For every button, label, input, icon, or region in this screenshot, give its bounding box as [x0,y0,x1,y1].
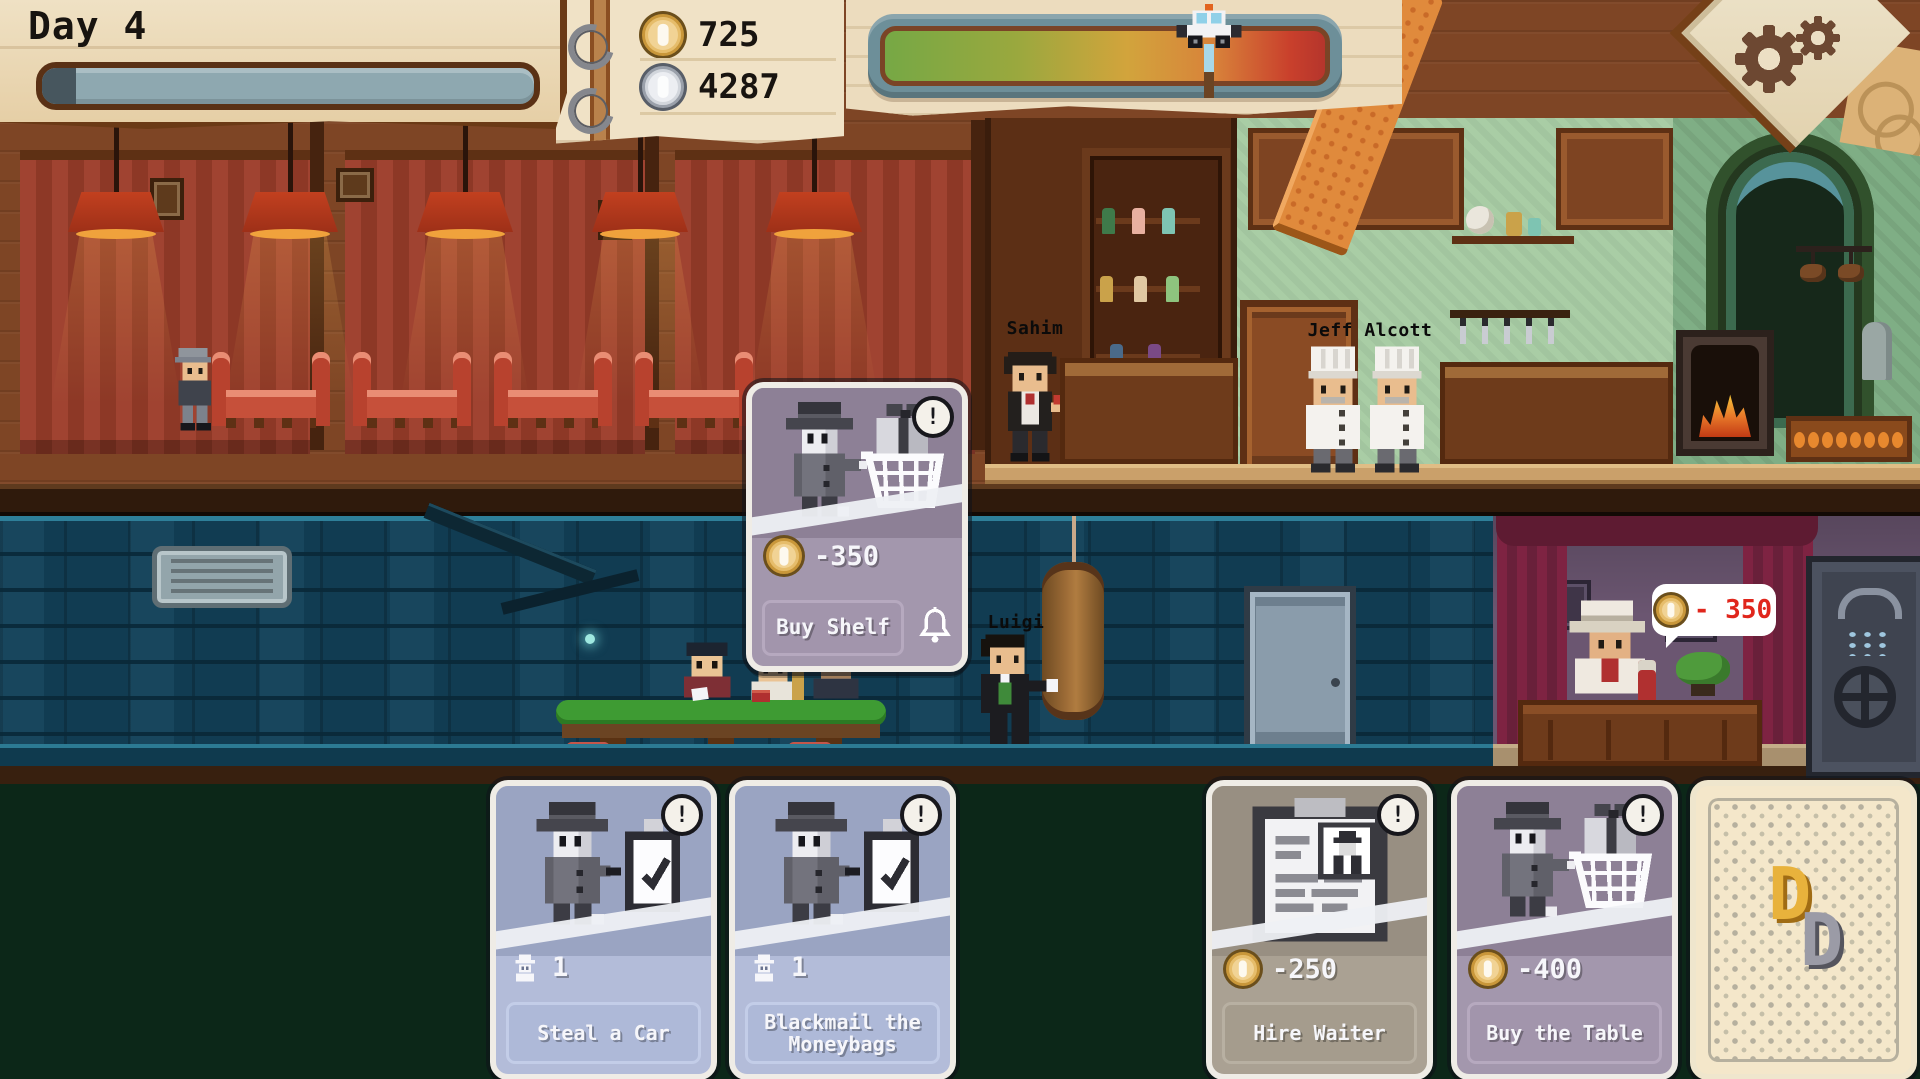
game-screen: Sahim Jeff [0,0,1920,1079]
npc-chef[interactable] [1358,338,1436,482]
person-icon [749,953,779,983]
gold-amount: 725 [698,15,759,55]
gear-icon [1794,14,1842,62]
statue [1862,322,1892,380]
knife-rack [1450,310,1570,318]
globe-lamp [1466,206,1494,234]
npc-bartender[interactable] [995,352,1065,466]
jar [1506,212,1522,236]
card-cost: -250 [1272,954,1337,985]
binder-ring [560,16,623,79]
gold-coin-icon [642,14,684,56]
ledger-line [640,58,836,61]
card-cost: -350 [814,541,879,572]
npc-customer[interactable] [168,348,218,434]
binder-ring [560,80,623,143]
curtain-valance [1496,516,1818,546]
card-cost: -400 [1517,954,1582,985]
poker-chips [752,690,770,702]
pan-rail [1796,246,1872,252]
currency-panel: 725 4287 [556,0,844,148]
card-title: Steal a Car [506,1002,701,1064]
picture-frame [336,168,374,202]
alert-badge: ! [1622,794,1664,836]
safe[interactable] [1806,556,1920,778]
kitchen-counter[interactable] [1440,362,1673,464]
air-vent [152,546,292,608]
card-title: Hire Waiter [1222,1002,1417,1064]
card-title: Buy Shelf [762,600,904,656]
day-panel: Day 4 [0,0,567,129]
desk-plant [1676,652,1730,686]
restaurant-floorboards [985,464,1920,484]
gold-coin-icon [1656,595,1686,625]
alert-badge: ! [912,396,954,438]
police-meter-marker [1175,4,1243,50]
card-face-down[interactable]: D D [1690,780,1917,1079]
kitchen-shelf [1452,236,1574,244]
gold-coin-icon [1226,952,1260,986]
kitchen-cabinet[interactable] [1556,128,1674,230]
card-back-monogram: D [1800,904,1843,976]
cost-speech-bubble: - 350 [1652,584,1776,636]
silver-coin-icon [642,66,684,108]
bubble-cost-value: - 350 [1694,595,1772,625]
card-title: Buy the Table [1467,1002,1662,1064]
fireplace[interactable] [1676,330,1774,456]
day-label: Day 4 [28,4,147,48]
npc-name-label: Luigi [988,612,1045,633]
card-art: ! [496,786,711,956]
card-buy-shelf[interactable]: ! -350 Buy Shelf [746,382,968,672]
alert-badge: ! [1377,794,1419,836]
police-heat-meter [868,14,1342,98]
jar [1528,218,1541,236]
bottle [792,670,804,700]
ledger-line [640,112,836,115]
card-steal-a-car[interactable]: ! 1 Steal a Car [490,780,717,1079]
office-desk[interactable] [1518,700,1762,766]
booth-seat[interactable] [494,352,612,434]
alert-badge: ! [661,794,703,836]
settings-button[interactable] [1732,22,1862,112]
card-cost: 1 [552,952,568,983]
playing-cards [691,687,709,701]
silver-amount: 4287 [698,67,780,107]
spark-glow [585,634,595,644]
bar-counter[interactable] [1060,358,1238,464]
punching-bag-rope [1072,516,1076,566]
alert-badge: ! [900,794,942,836]
bell-icon[interactable] [918,606,952,644]
card-art: ! [752,388,962,538]
card-art: ! [1457,786,1672,956]
gold-coin-icon [1471,952,1505,986]
card-buy-the-table[interactable]: ! -400 Buy the Table [1451,780,1678,1079]
hanging-debris [424,503,597,585]
police-meter-gradient [880,26,1330,86]
gold-coin-icon [766,538,802,574]
npc-name-label: Jeff Alcott [1308,320,1433,341]
booth-seat[interactable] [212,352,330,434]
day-progress-bar [36,62,540,110]
radiator [1786,416,1912,462]
card-hire-waiter[interactable]: ! -250 Hire Waiter [1206,780,1433,1079]
wall-post [971,120,985,450]
basement-floor [0,744,1493,766]
person-icon [510,953,540,983]
card-blackmail-the-moneybags[interactable]: ! 1 Blackmail the Moneybags [729,780,956,1079]
npc-name-label: Sahim [1007,318,1064,339]
card-title: Blackmail the Moneybags [745,1002,940,1064]
booth-seat[interactable] [353,352,471,434]
card-art: ! [735,786,950,956]
card-art: ! [1212,786,1427,956]
booth-seat[interactable] [635,352,753,434]
card-cost: 1 [791,952,807,983]
desk-bottle [1638,660,1656,700]
